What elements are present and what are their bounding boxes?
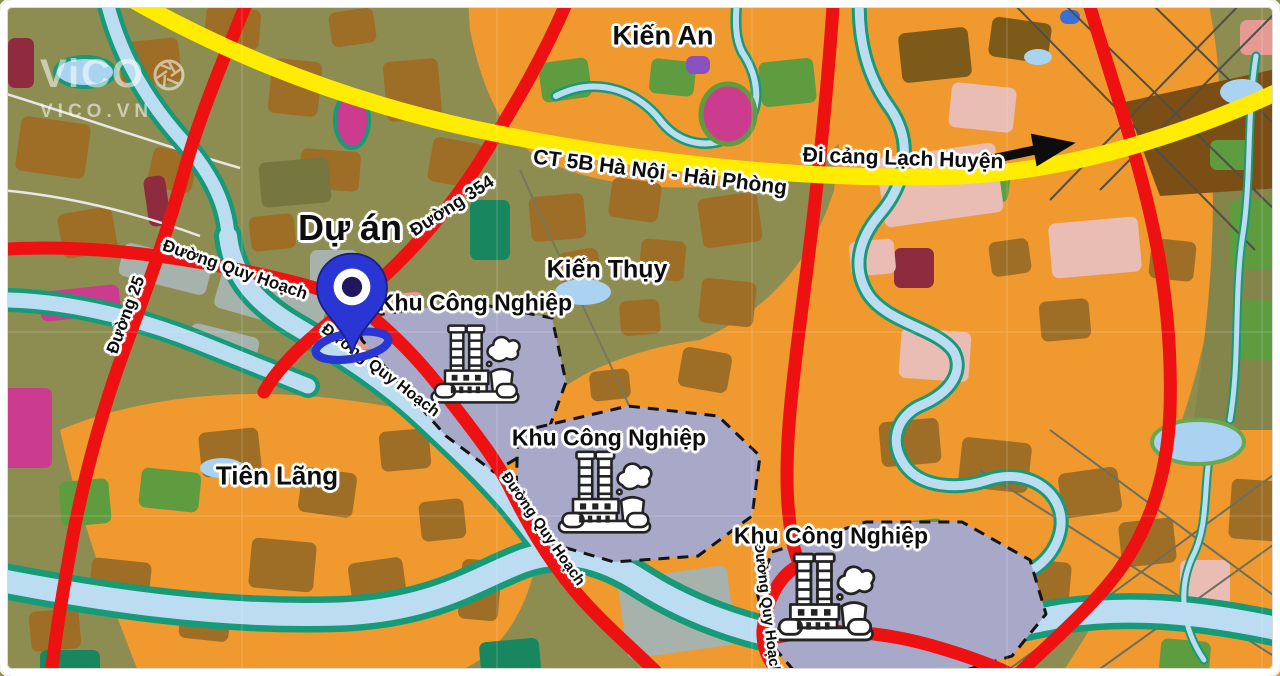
terrain-patch [248,213,296,253]
planning-map: ViCO VICO.VN Kiến An Kiến Thụy Tiên Lãng… [0,0,1280,676]
terrain-patch [698,277,757,328]
terrain-patch [758,57,817,108]
terrain-patch [470,200,510,260]
blue-map-pin [306,248,398,368]
terrain-patch [15,115,92,179]
terrain-patch [1048,216,1142,279]
terrain-patch [988,237,1032,277]
terrain-patch [1240,20,1280,55]
terrain-patch [479,637,542,676]
terrain-patch [528,193,587,243]
terrain-patch [1038,298,1091,342]
map-canvas [0,0,1280,676]
factory-icon [552,448,657,536]
terrain-patch [638,238,686,282]
terrain-patch [1228,478,1280,541]
terrain-patch [258,157,332,208]
terrain-patch [0,388,52,468]
terrain-patch [8,38,34,88]
factory-icon [768,550,880,644]
arrow-right-icon [978,126,1080,174]
terrain-patch [328,7,377,48]
terrain-patch [898,26,973,83]
factory-icon [425,322,525,406]
terrain-patch [1237,298,1280,361]
terrain-patch [418,498,467,542]
terrain-patch [248,537,317,592]
terrain-patch [686,56,710,74]
terrain-patch [677,346,733,394]
terrain-patch [697,191,763,249]
terrain-patch [297,466,358,518]
terrain-patch [894,248,934,288]
terrain-patch [619,299,661,337]
terrain-patch [607,177,662,224]
terrain-patch [138,467,202,513]
